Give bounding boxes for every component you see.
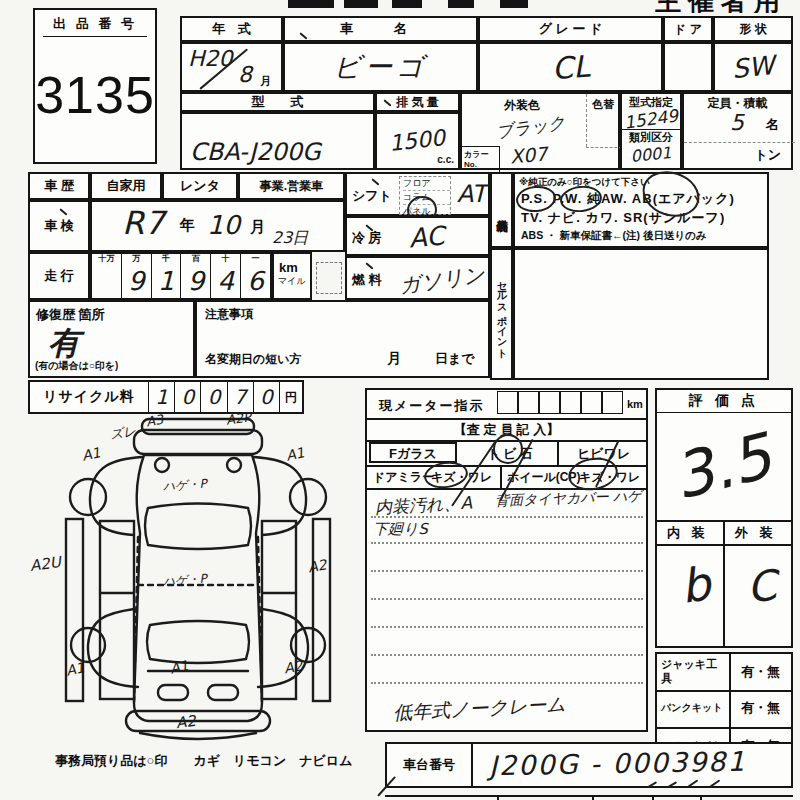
tool-puncture-label: パンクキット: [661, 701, 722, 715]
col-divider: [500, 465, 502, 488]
col-divider: [557, 440, 559, 465]
note-line: [371, 542, 643, 544]
note-line: [371, 654, 643, 656]
type-designation-block: 型式指定 15249 類別区分 0001: [620, 92, 682, 170]
damage-annotation: ズレ: [109, 422, 138, 444]
exterior-grade: C: [745, 561, 779, 613]
meter-label: 現メーター指示: [379, 397, 485, 415]
caution-cell: 注意事項 名変期日の短い方 月 日まで: [195, 300, 490, 378]
equipment-line3: ABS ・ 新車保証書←(注) 後日送りのみ: [515, 227, 767, 243]
recycle-digit: 1: [149, 382, 175, 412]
front-lip: [140, 733, 256, 739]
color-no-label-box: カラーNo.: [462, 146, 500, 172]
clipped-title-fragment: [448, 0, 474, 8]
cutoff-table-tick: [592, 795, 594, 800]
shift-cell: シフト フロア コラム パネル AT: [345, 172, 490, 216]
equipment-note: ※純正のみ○印をつけて下さい: [515, 174, 767, 189]
odometer-label-cell: 走 行: [28, 252, 90, 300]
sales-point-vert-label: セールスポイント: [490, 248, 513, 380]
history-business-cell: 事業.営業車: [238, 172, 345, 200]
chassis-label-cell: 車台番号: [387, 744, 473, 786]
rear-washer: [155, 458, 169, 472]
displacement-value: 1500: [388, 125, 446, 156]
clipped-title-fragment: [288, 0, 334, 8]
shift-value: AT: [457, 180, 486, 208]
f-glass-cell: Fガラス: [369, 442, 457, 463]
meter-digit-box: [602, 391, 623, 414]
year-header: 年 式: [180, 16, 283, 42]
class-division-value: 0001: [621, 142, 681, 167]
model-header: 型 式: [180, 92, 375, 112]
tool-puncture-value: 有・無: [741, 699, 780, 717]
car-name-value: ビーゴ: [333, 49, 427, 85]
damage-annotation: A3: [145, 412, 165, 430]
clipped-title-fragment: [500, 0, 528, 8]
rating-score: 3.5: [666, 419, 779, 514]
shaken-day: 23日: [272, 228, 308, 249]
year-month-value: 8: [238, 62, 252, 87]
sales-point-box: [513, 248, 769, 380]
shaken-label-cell: 車 検: [28, 200, 90, 252]
km-unit: km: [274, 254, 310, 275]
lot-number-label: 出 品 番 号: [43, 15, 147, 37]
chassis-number-box: 車台番号 J200G - 0003981: [385, 742, 793, 788]
color-change-label: 色替: [592, 97, 614, 112]
damage-annotation: A2: [175, 712, 197, 733]
cutoff-table-tick: [497, 795, 499, 800]
month-unit: 月: [260, 74, 271, 89]
lot-number-value: 3135: [35, 65, 155, 125]
recycle-digit: 0: [201, 382, 227, 412]
damage-annotation: A2: [283, 658, 304, 677]
headlight: [158, 685, 188, 700]
tobi-circle-mark: [493, 434, 523, 464]
odometer-check-box: [316, 262, 342, 294]
rating-box: 評 価 点 3.5 内 装 外 装 b C: [655, 388, 793, 648]
repair-history-cell: 修復歴 箇所 有 (有の場合は○印を): [28, 300, 195, 378]
capacity-block: 定員・積載 5 名 トン: [682, 92, 793, 170]
interior-label: 内 装: [667, 524, 709, 542]
shift-label: シフト: [352, 187, 392, 205]
headlight: [208, 685, 238, 700]
equipment-vert-label: 装備品: [490, 172, 513, 248]
odometer-digits-cell: 十万 万9 千1 百9 十4 一6: [90, 252, 272, 300]
shape-header: 形 状: [713, 16, 793, 42]
history-private-cell: 自家用: [90, 172, 162, 200]
ac-label: 冷 房: [352, 229, 382, 247]
shape-value-cell: SW: [713, 42, 793, 92]
note-line: [371, 626, 643, 628]
capacity-divider: [684, 142, 795, 143]
door-header: ド ア: [663, 16, 713, 42]
shaken-month-unit: 月: [250, 218, 265, 237]
transfer-month-unit: 月: [387, 350, 401, 368]
note-line: [371, 570, 643, 572]
assessor-note3: 下廻りS: [373, 520, 428, 539]
cutoff-table-tick: [700, 795, 702, 800]
year-value-cell: H20 8 月: [180, 42, 283, 92]
odometer-col: 千1: [152, 254, 182, 298]
fuel-label: 燃 料: [352, 271, 382, 289]
note-line: [371, 682, 643, 684]
rear-glass: [145, 504, 251, 550]
recycle-label-cell: リサイクル料: [30, 382, 149, 412]
color-no-value: X07: [509, 142, 548, 167]
assessor-bottom-note: 低年式ノークレーム: [392, 691, 566, 726]
clipped-title-fragment: [344, 0, 378, 8]
front-fender-left: [88, 609, 138, 687]
transfer-note: 名変期日の短い方: [205, 351, 302, 368]
meter-digit-box: [539, 391, 560, 414]
col-divider: [723, 520, 725, 646]
note-line: [371, 598, 643, 600]
recycle-unit-cell: 円: [280, 382, 302, 412]
exterior-color-label: 外装色: [504, 97, 540, 114]
ac-value: AC: [408, 221, 446, 254]
interior-grade: b: [677, 556, 713, 614]
exterior-label: 外 装: [735, 524, 777, 542]
clipped-title-fragment: [392, 0, 422, 8]
recycle-digit: 0: [175, 382, 201, 412]
grade-header: グ レ ー ド: [478, 16, 663, 42]
assessor-note2: 背面タイヤカバー ハゲ: [495, 487, 642, 510]
exterior-color-value: ブラック: [495, 111, 567, 143]
equipment-line2: TV. ナビ. カワ. SR(サンルーフ): [515, 208, 767, 227]
note-line: [371, 516, 643, 518]
meter-km-unit: km: [627, 398, 643, 410]
color-change-divider-bottom: [586, 147, 622, 148]
top-right-title: 主催者用: [655, 0, 795, 13]
displacement-value-cell: 1500 c.c.: [375, 112, 460, 170]
load-unit: トン: [754, 146, 781, 164]
office-note: 事務局預り品は○印 カギ リモコン ナビロム: [55, 752, 353, 770]
cutoff-table-top: [385, 795, 793, 797]
capacity-value: 5: [730, 110, 744, 135]
caution-label: 注意事項: [205, 306, 253, 323]
recycle-fee-row: リサイクル料 1 0 0 7 0 円: [28, 380, 304, 414]
grade-value-cell: CL: [478, 42, 663, 92]
odometer-col: 万9: [122, 254, 152, 298]
exterior-color-block: 外装色 色替 ブラック カラーNo. X07: [460, 92, 620, 170]
history-rental-cell: レンタ: [162, 172, 238, 200]
odometer-unit-cell: km マイル: [272, 252, 312, 300]
color-no-label: カラーNo.: [462, 147, 499, 169]
history-label-cell: 車 歴: [28, 172, 90, 200]
front-fender-right: [258, 609, 308, 687]
model-value: CBA-J200G: [190, 138, 321, 166]
wheel: [290, 479, 326, 515]
row-divider: [657, 727, 791, 729]
rear-washer: [227, 458, 241, 472]
cc-unit: c.c.: [437, 154, 454, 165]
tool-jack-label: ジャッキ工具: [661, 657, 723, 685]
mile-unit: マイル: [274, 275, 310, 288]
meter-digit-box: [497, 391, 518, 414]
recycle-digit: 7: [228, 382, 254, 412]
shaken-month: 10: [207, 210, 240, 240]
shaken-year-unit: 年: [180, 216, 195, 235]
chassis-value: J200G - 0003981: [489, 746, 747, 781]
fuel-value: ガソリン: [397, 260, 486, 300]
windshield: [147, 621, 249, 663]
equipment-box: ※純正のみ○印をつけて下さい P.S. P.W. 純AW. AB(エアバック) …: [513, 172, 769, 248]
door-value-cell: [663, 42, 713, 92]
shape-value: SW: [730, 50, 775, 84]
meter-digit-box: [518, 391, 539, 414]
wheel: [70, 479, 106, 515]
repair-note: (有の場合は○印を): [35, 359, 118, 373]
rating-header: 評 価 点: [657, 390, 791, 413]
meter-digit-box: [581, 391, 602, 414]
cutoff-table-tick: [652, 795, 654, 800]
lot-number-box: 出 品 番 号 3135: [33, 8, 157, 164]
meter-digit-box: [560, 391, 581, 414]
auction-sheet: 主催者用 出 品 番 号 3135 年 式 車 名 グ レ ー ド ド ア 形 …: [0, 0, 800, 800]
transfer-day-unit: 日まで: [435, 350, 475, 368]
model-value-cell: CBA-J200G: [180, 112, 375, 170]
damage-annotation: ハゲ・P: [162, 570, 207, 590]
damage-annotation: A2: [307, 557, 328, 576]
color-change-divider: [586, 94, 587, 147]
ac-cell: 冷 房 AC: [345, 216, 490, 256]
odometer-col: 一6: [241, 254, 270, 298]
tool-jack-value: 有・無: [741, 663, 780, 681]
odometer-col: 百9: [181, 254, 211, 298]
sill-right: [313, 519, 330, 701]
recycle-digit: 0: [254, 382, 280, 412]
capacity-unit: 名: [766, 116, 779, 134]
odometer-col: 十4: [211, 254, 241, 298]
grade-value: CL: [550, 48, 590, 86]
shaken-era: R7: [122, 204, 165, 242]
row-divider: [657, 690, 791, 692]
shaken-value-cell: R7 年 10 月 23日: [90, 200, 345, 252]
odometer-col: 十万: [92, 254, 122, 298]
damage-annotation: ハゲ・P: [162, 475, 207, 495]
car-name-value-cell: ビーゴ: [283, 42, 478, 92]
car-name-header: 車 名: [283, 16, 478, 42]
